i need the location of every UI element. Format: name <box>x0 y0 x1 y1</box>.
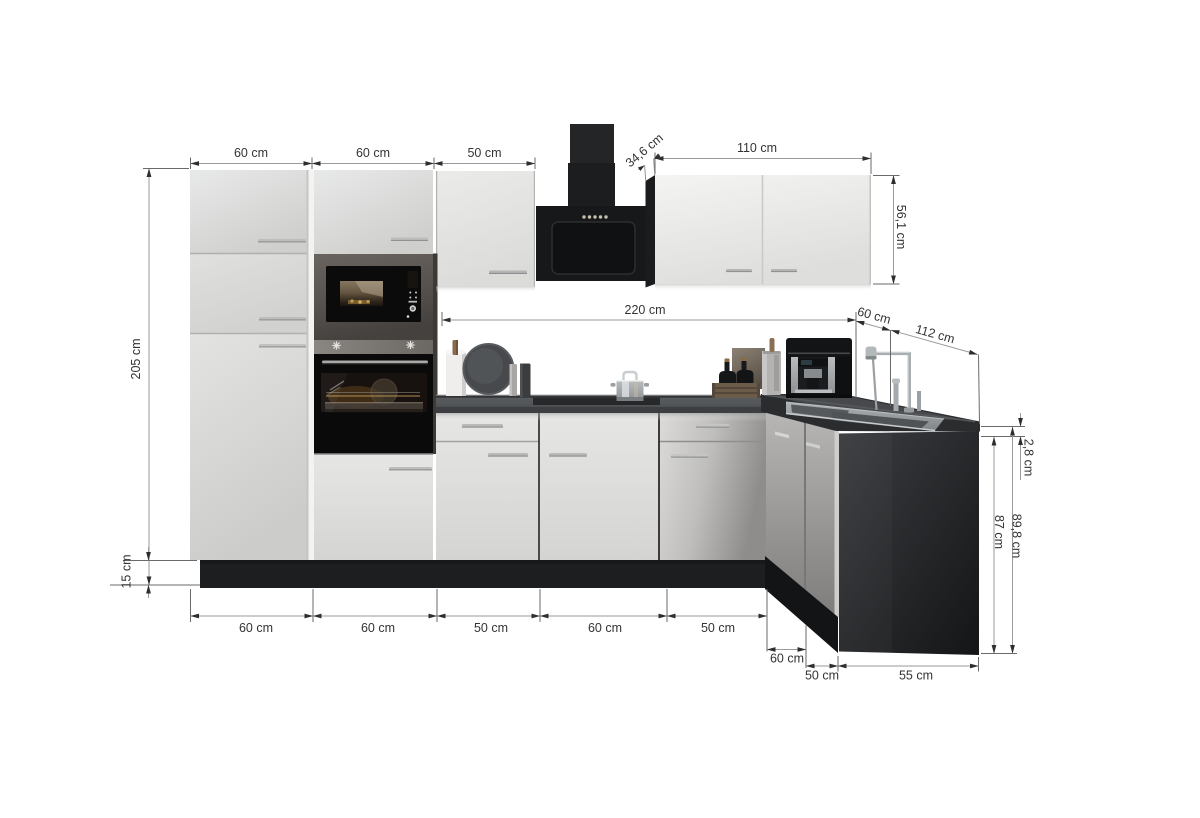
svg-text:50 cm: 50 cm <box>701 621 735 635</box>
svg-text:50 cm: 50 cm <box>467 146 501 160</box>
svg-text:15 cm: 15 cm <box>120 554 134 588</box>
svg-text:50 cm: 50 cm <box>474 621 508 635</box>
svg-text:89,8 cm: 89,8 cm <box>1010 514 1024 558</box>
svg-text:55 cm: 55 cm <box>899 669 933 683</box>
svg-text:2,8 cm: 2,8 cm <box>1022 439 1036 477</box>
svg-text:60 cm: 60 cm <box>361 621 395 635</box>
svg-text:60 cm: 60 cm <box>770 652 804 666</box>
svg-text:50 cm: 50 cm <box>805 669 839 683</box>
svg-text:60 cm: 60 cm <box>234 146 268 160</box>
svg-text:60 cm: 60 cm <box>588 621 622 635</box>
svg-text:205 cm: 205 cm <box>129 339 143 380</box>
svg-text:220 cm: 220 cm <box>625 303 666 317</box>
svg-text:110 cm: 110 cm <box>737 141 777 155</box>
svg-text:60 cm: 60 cm <box>239 621 273 635</box>
svg-text:60 cm: 60 cm <box>356 146 390 160</box>
svg-text:56,1 cm: 56,1 cm <box>894 205 908 249</box>
svg-text:87 cm: 87 cm <box>992 515 1006 549</box>
